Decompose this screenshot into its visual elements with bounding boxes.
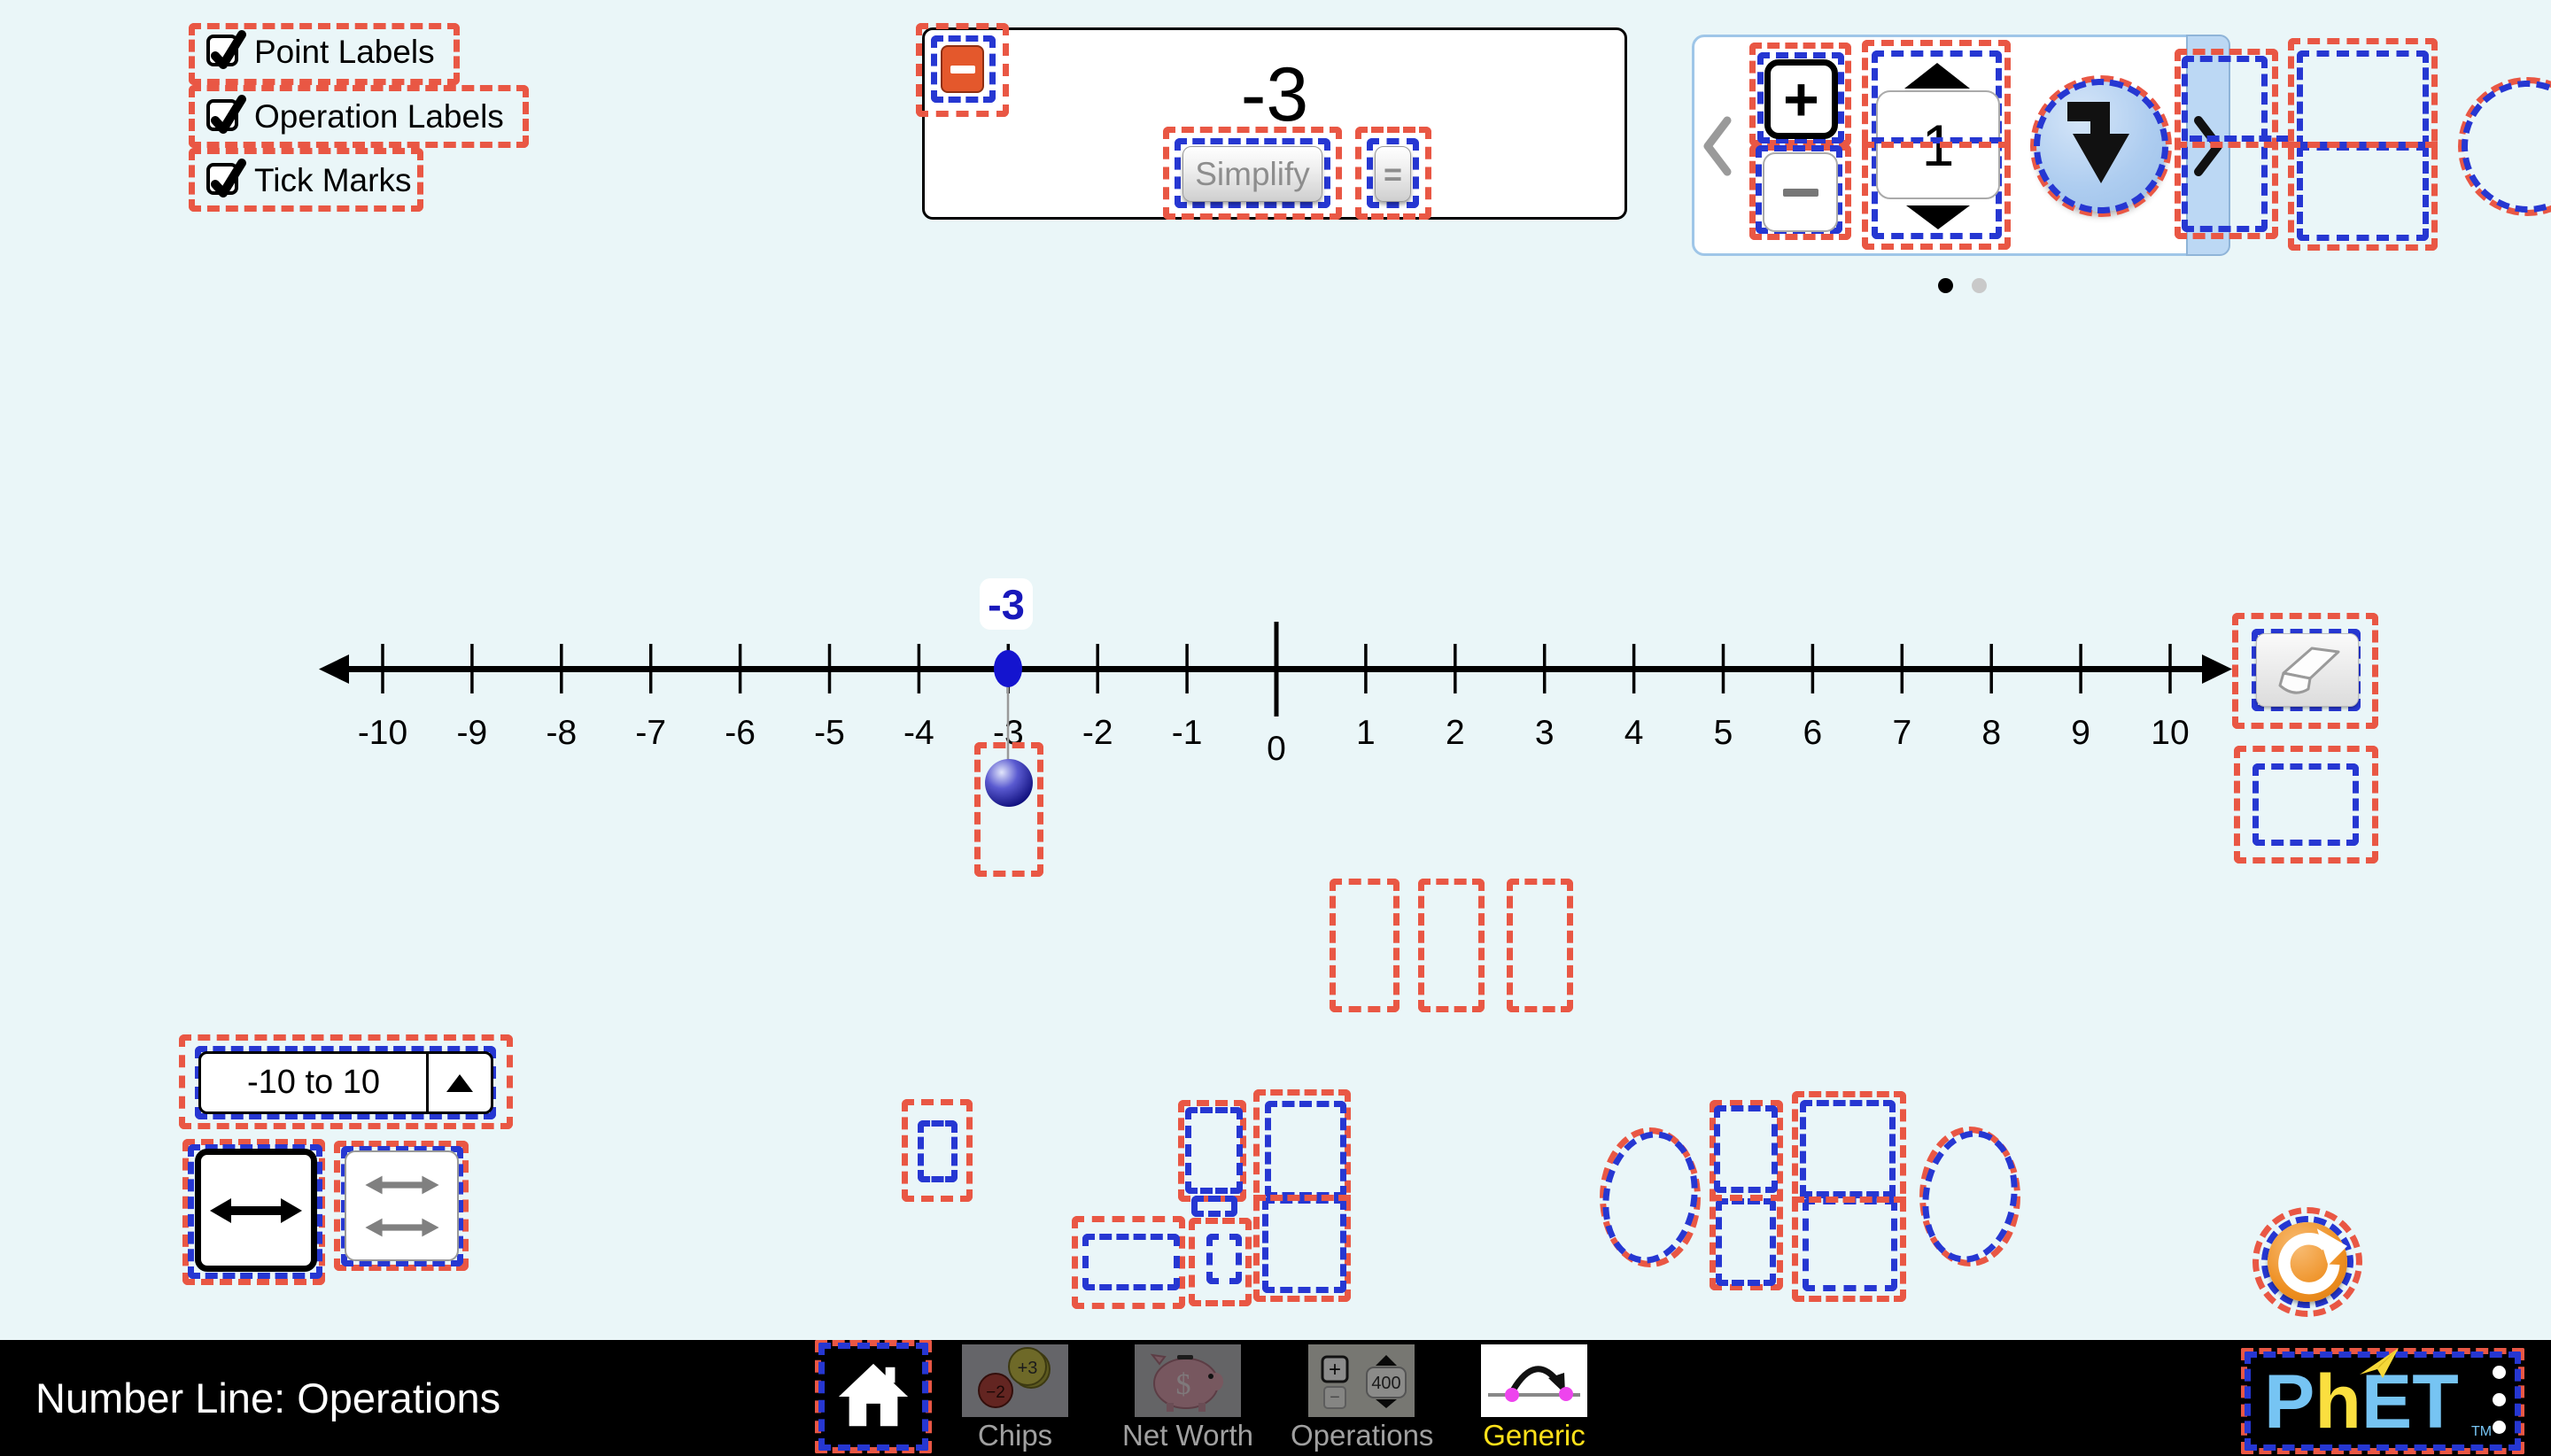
tick-label: -2 [1082, 714, 1113, 752]
generic-thumb-art [1481, 1344, 1587, 1417]
annotation-box-blue [1191, 1196, 1237, 1217]
annotation-box-blue [1716, 1198, 1776, 1286]
operations-thumb-art: + − 400 [1308, 1344, 1415, 1417]
svg-text:400: 400 [1371, 1374, 1400, 1393]
tick-label: -8 [546, 714, 577, 752]
tick-label: 3 [1535, 714, 1555, 752]
kebab-menu-icon[interactable] [2493, 1366, 2506, 1434]
chips-thumb-art: +3 −2 [962, 1344, 1068, 1417]
range-combo-box[interactable]: -10 to 10 [198, 1051, 493, 1114]
annotation-box-red [1418, 879, 1485, 1012]
annotation-box-blue [1082, 1234, 1180, 1290]
range-combo-arrow-section[interactable] [426, 1054, 491, 1111]
annotation-box-blue [1800, 1100, 1896, 1197]
annotation-box-blue [1803, 1198, 1897, 1291]
single-number-line-button[interactable] [195, 1149, 317, 1272]
screen-thumb-chips[interactable]: +3 −2 [962, 1344, 1068, 1417]
home-button[interactable] [826, 1347, 921, 1446]
tick-label: -1 [1172, 714, 1203, 752]
svg-text:$: $ [1176, 1368, 1191, 1401]
screen-thumb-operations[interactable]: + − 400 [1308, 1344, 1415, 1417]
horizontal-arrow-icon [360, 1171, 445, 1199]
annotation-box-blue [1262, 1197, 1346, 1293]
range-combo-value: -10 to 10 [201, 1054, 426, 1111]
horizontal-arrow-icon [210, 1193, 302, 1228]
number-line-right-arrow [2202, 654, 2232, 684]
eraser-icon [2257, 634, 2358, 706]
svg-text:−: − [1330, 1388, 1340, 1407]
tick-label: -9 [457, 714, 488, 752]
tick-label: -5 [814, 714, 845, 752]
annotation-line-red [1792, 1197, 1906, 1203]
annotation-box-blue [1185, 1107, 1243, 1194]
reset-all-button[interactable] [2268, 1222, 2347, 1302]
number-line-point[interactable] [994, 650, 1022, 687]
tick-label: 5 [1714, 714, 1733, 752]
annotation-box-red [1507, 879, 1573, 1012]
annotation-line-red [1253, 1195, 1351, 1201]
point-value-label: -3 [980, 578, 1033, 630]
annotation-line-red [1710, 1195, 1783, 1201]
tick-label: 8 [1981, 714, 2001, 752]
tick-label: 2 [1446, 714, 1465, 752]
screen-label-generic[interactable]: Generic [1463, 1419, 1605, 1452]
svg-text:+: + [1329, 1358, 1341, 1382]
screen-thumb-net-worth[interactable]: $ [1135, 1344, 1241, 1417]
tick-label: 9 [2071, 714, 2090, 752]
tick-label: 1 [1356, 714, 1376, 752]
up-triangle-icon [446, 1074, 473, 1092]
home-icon [835, 1359, 911, 1435]
logo-letter: P [2264, 1364, 2315, 1440]
tick-label: -4 [903, 714, 934, 752]
tick-label: 6 [1803, 714, 1823, 752]
reset-icon [2268, 1222, 2347, 1302]
tick-marks: -10-9-8-7-6-5-4-3-2-1012345678910 [358, 622, 2190, 768]
annotation-box-blue [1206, 1234, 1242, 1284]
screen-thumb-generic[interactable] [1481, 1344, 1587, 1417]
screen-label-operations[interactable]: Operations [1291, 1419, 1432, 1452]
tick-label: 0 [1267, 730, 1286, 768]
tick-label: -6 [725, 714, 756, 752]
annotation-box-blue [1265, 1101, 1346, 1198]
annotation-box-blue [1714, 1105, 1778, 1193]
horizontal-arrow-icon [360, 1213, 445, 1242]
screen-label-net-worth[interactable]: Net Worth [1117, 1419, 1259, 1452]
phet-sim-screen: Point Labels Operation Labels Tick Marks… [0, 0, 2551, 1456]
sim-title: Number Line: Operations [35, 1340, 500, 1456]
tick-label: -7 [635, 714, 666, 752]
eraser-button[interactable] [2256, 633, 2359, 707]
number-line-left-arrow [319, 654, 349, 684]
tick-label: 7 [1892, 714, 1911, 752]
annotation-box-red [974, 742, 1043, 877]
trademark-label: TM [2471, 1424, 2492, 1440]
logo-letter: T [2412, 1364, 2459, 1440]
svg-text:−2: −2 [986, 1383, 1005, 1402]
annotation-box-blue [918, 1120, 958, 1182]
tick-label: 4 [1624, 714, 1644, 752]
annotation-box-blue [2252, 763, 2359, 846]
dual-number-line-button[interactable] [345, 1150, 459, 1261]
svg-text:+3: +3 [1018, 1359, 1038, 1378]
paper-airplane-icon [2353, 1344, 2406, 1380]
piggy-bank-icon: $ [1135, 1344, 1241, 1417]
annotation-box-red [1330, 879, 1400, 1012]
screen-label-chips[interactable]: Chips [944, 1419, 1086, 1452]
tick-label: 10 [2151, 714, 2189, 752]
tick-label: -10 [358, 714, 407, 752]
